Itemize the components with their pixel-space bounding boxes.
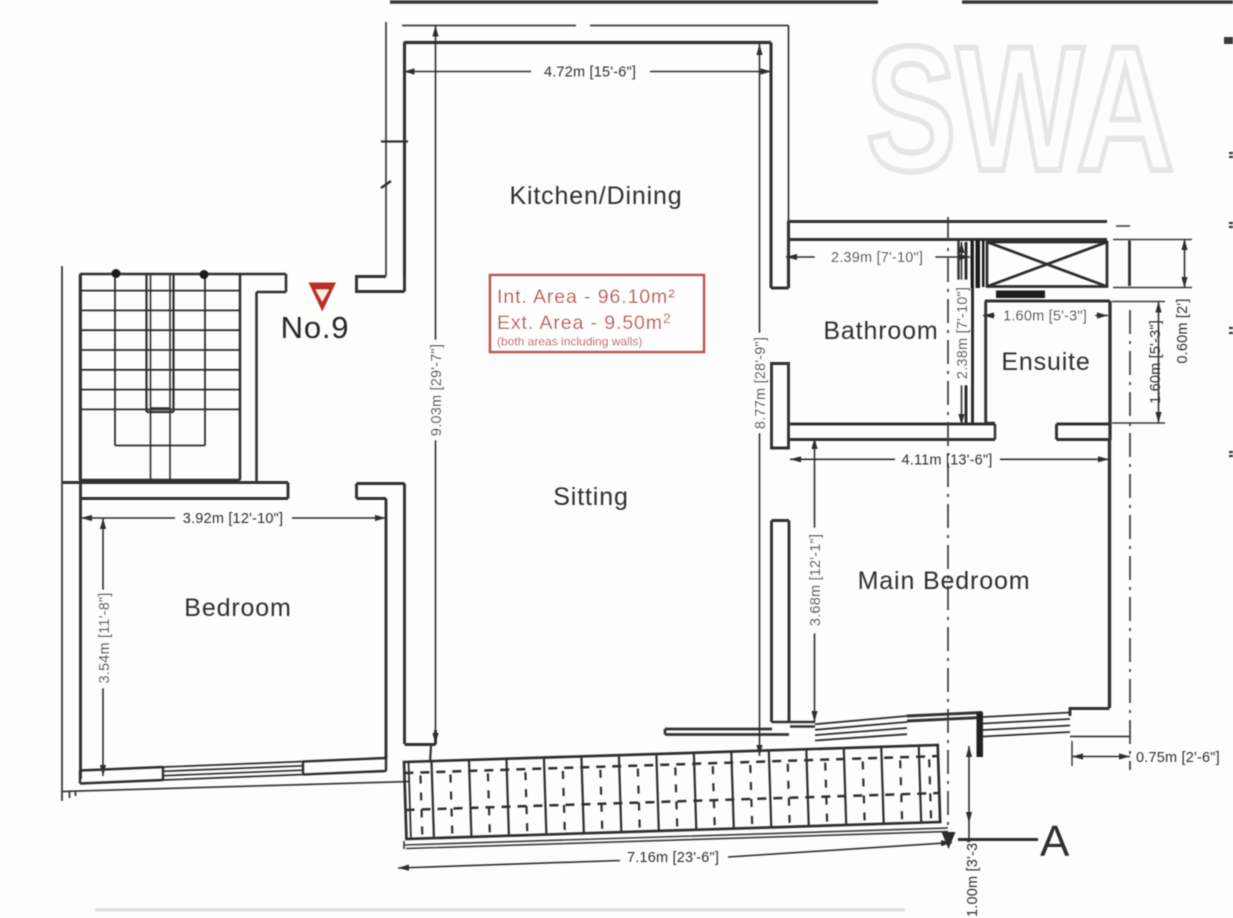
svg-text:7.16m [23'-6"]: 7.16m [23'-6"] [627, 850, 719, 866]
svg-text:8.77m [28'-9"]: 8.77m [28'-9"] [753, 337, 769, 429]
svg-text:4.11m [13'-6"]: 4.11m [13'-6"] [901, 453, 992, 469]
svg-text:Bathroom: Bathroom [823, 317, 938, 345]
svg-text:A: A [1040, 817, 1070, 866]
svg-text:2.39m [7'-10"]: 2.39m [7'-10"] [831, 250, 923, 266]
svg-text:Ensuite: Ensuite [1001, 348, 1090, 376]
svg-text:0.75m [2'-6"]: 0.75m [2'-6"] [1136, 750, 1220, 766]
svg-text:9.03m [29'-7"]: 9.03m [29'-7"] [429, 344, 445, 436]
svg-text:4.72m [15'-6"]: 4.72m [15'-6"] [544, 65, 636, 81]
svg-text:0.60m [2']: 0.60m [2'] [1175, 298, 1191, 363]
svg-text:2.38m [7'-10"]: 2.38m [7'-10"] [955, 287, 971, 379]
svg-text:SWA: SWA [866, 10, 1174, 208]
svg-text:Bedroom: Bedroom [184, 594, 291, 622]
svg-text:Ext. Area - 9.50m2: Ext. Area - 9.50m2 [497, 310, 672, 334]
svg-text:Sitting: Sitting [553, 483, 628, 511]
svg-text:1.00m [3'-3": 1.00m [3'-3" [965, 837, 981, 917]
svg-text:Int. Area - 96.10m²: Int. Area - 96.10m² [497, 286, 676, 308]
svg-text:3.92m [12'-10"]: 3.92m [12'-10"] [183, 511, 283, 527]
svg-text:No.9: No.9 [281, 310, 350, 345]
svg-text:Main Bedroom: Main Bedroom [858, 567, 1031, 595]
svg-text:3.68m [12'-1"]: 3.68m [12'-1"] [808, 534, 824, 626]
svg-text:Kitchen/Dining: Kitchen/Dining [509, 182, 682, 210]
svg-text:1.60m [5'-3"]: 1.60m [5'-3"] [1148, 320, 1164, 404]
svg-text:1.60m [5'-3"]: 1.60m [5'-3"] [1003, 309, 1087, 325]
svg-text:3.54m [11'-8"]: 3.54m [11'-8"] [97, 592, 113, 683]
svg-text:(both areas including walls): (both areas including walls) [497, 335, 642, 349]
